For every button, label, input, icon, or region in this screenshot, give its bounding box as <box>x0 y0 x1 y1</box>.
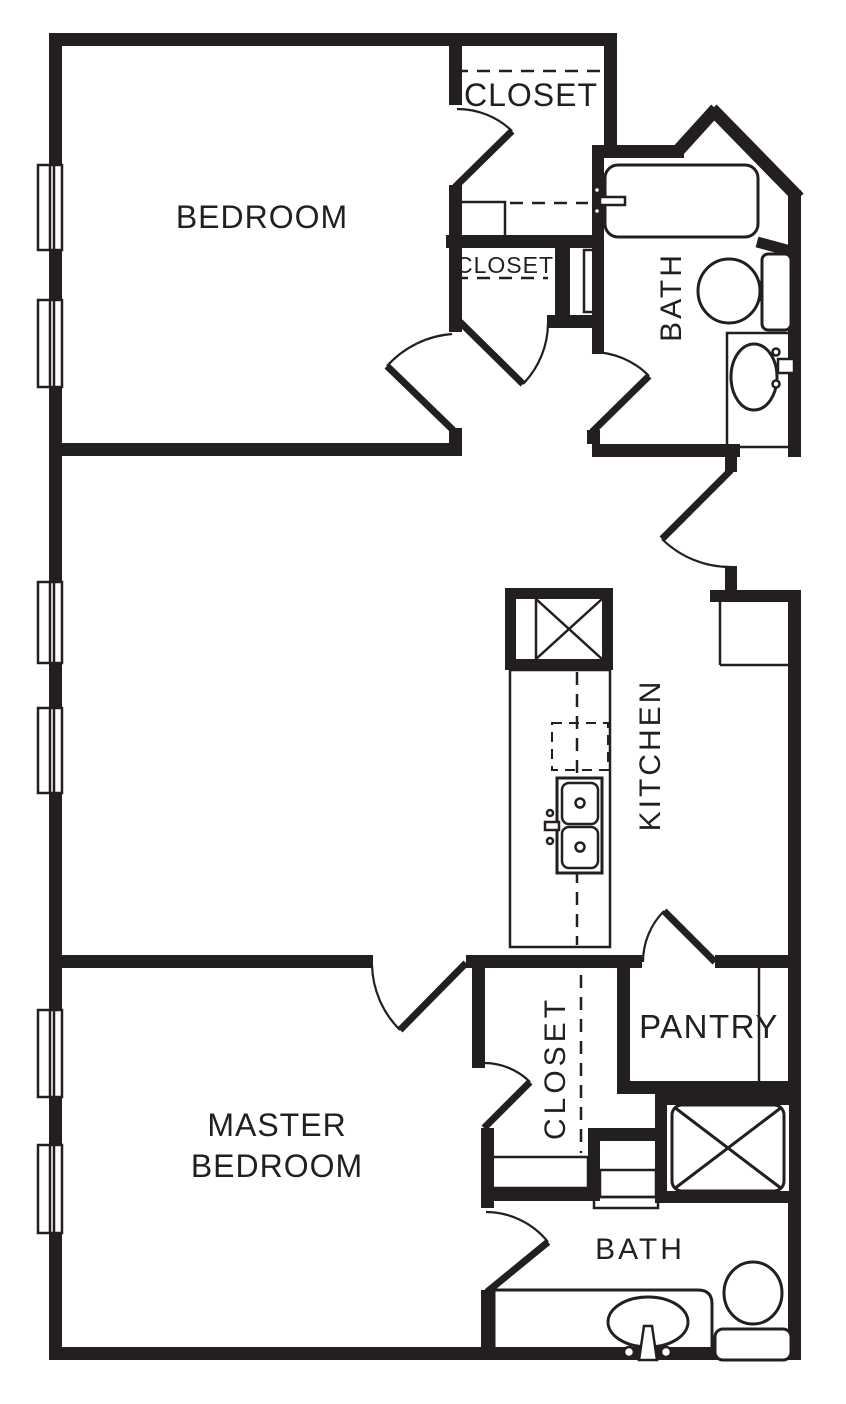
door-bath-upper <box>592 352 649 432</box>
door-pantry <box>643 911 715 962</box>
kitchen-fixtures <box>510 594 610 948</box>
room-label-closet-hall: CLOSET <box>456 252 554 278</box>
door-master-bedroom <box>372 963 466 1030</box>
room-label-master-line1: MASTER <box>207 1107 346 1143</box>
window <box>38 708 62 793</box>
room-label-bath-master: BATH <box>595 1233 685 1266</box>
bathtub <box>594 165 758 237</box>
toilet <box>698 254 791 330</box>
faucet <box>778 359 794 373</box>
toilet <box>715 1262 791 1360</box>
shower <box>661 1099 795 1197</box>
door-closet-top <box>455 109 512 187</box>
floor-plan-page: BEDROOM CLOSET CLOSET BATH KITCHEN MASTE… <box>0 0 846 1404</box>
room-label-closet-top: CLOSET <box>464 77 598 113</box>
door-master-closet <box>484 1063 530 1128</box>
bathroom-sink <box>727 333 794 447</box>
room-label-kitchen: KITCHEN <box>634 679 667 832</box>
window <box>38 1010 62 1097</box>
room-label-bedroom: BEDROOM <box>176 199 348 235</box>
window <box>38 582 62 663</box>
window <box>38 300 62 387</box>
room-label-closet-master: CLOSET <box>539 996 572 1140</box>
window <box>38 165 62 250</box>
floor-plan-drawing: BEDROOM CLOSET CLOSET BATH KITCHEN MASTE… <box>0 0 846 1404</box>
door-closet-hall <box>460 322 548 384</box>
door-entry <box>662 470 731 567</box>
room-label-bath-upper: BATH <box>655 252 688 342</box>
faucet <box>545 822 559 830</box>
dishwasher-dashed <box>552 723 608 770</box>
appliance-box <box>511 594 608 665</box>
room-label-master-line2: BEDROOM <box>191 1148 363 1184</box>
room-label-pantry: PANTRY <box>639 1008 779 1045</box>
door-master-bath <box>486 1212 548 1292</box>
faucet <box>600 197 625 205</box>
kitchen-sink <box>545 778 602 873</box>
window <box>38 1145 62 1233</box>
door-bedroom <box>387 334 453 430</box>
